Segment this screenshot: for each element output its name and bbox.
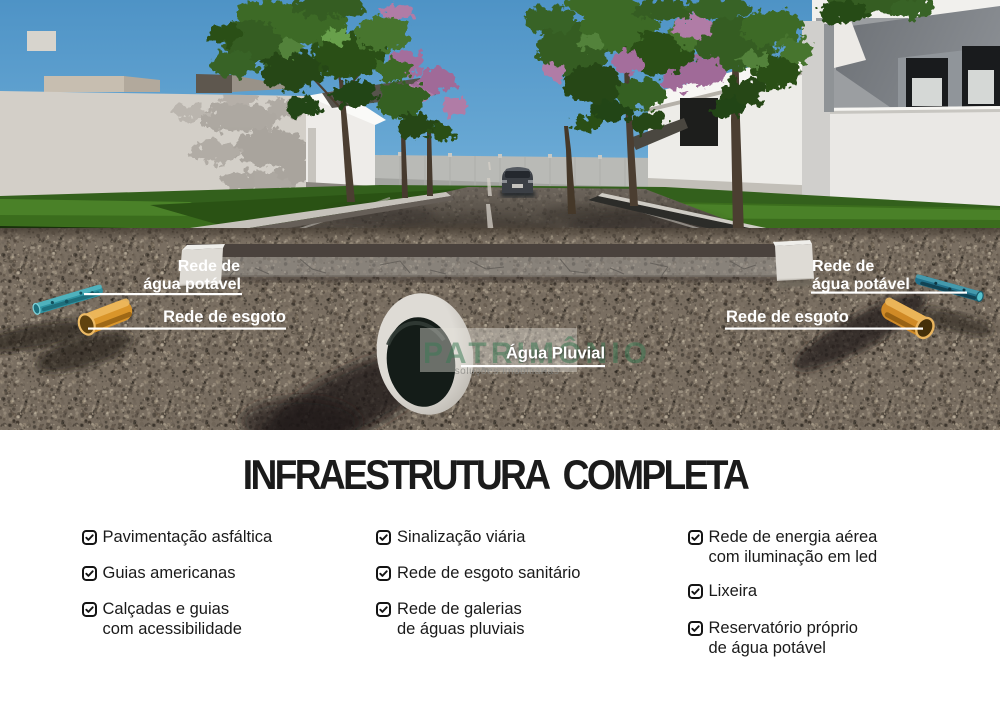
svg-text:água potável: água potável bbox=[143, 276, 241, 293]
svg-text:Rede de: Rede de bbox=[178, 258, 240, 275]
svg-text:Rede de esgoto: Rede de esgoto bbox=[726, 308, 849, 326]
svg-text:Rede de esgoto: Rede de esgoto bbox=[163, 308, 286, 326]
svg-text:soluções imobiliárias: soluções imobiliárias bbox=[455, 366, 560, 377]
svg-text:Rede de: Rede de bbox=[812, 258, 874, 275]
svg-text:Água Pluvial: Água Pluvial bbox=[506, 344, 605, 363]
svg-text:água potável: água potável bbox=[812, 276, 910, 293]
